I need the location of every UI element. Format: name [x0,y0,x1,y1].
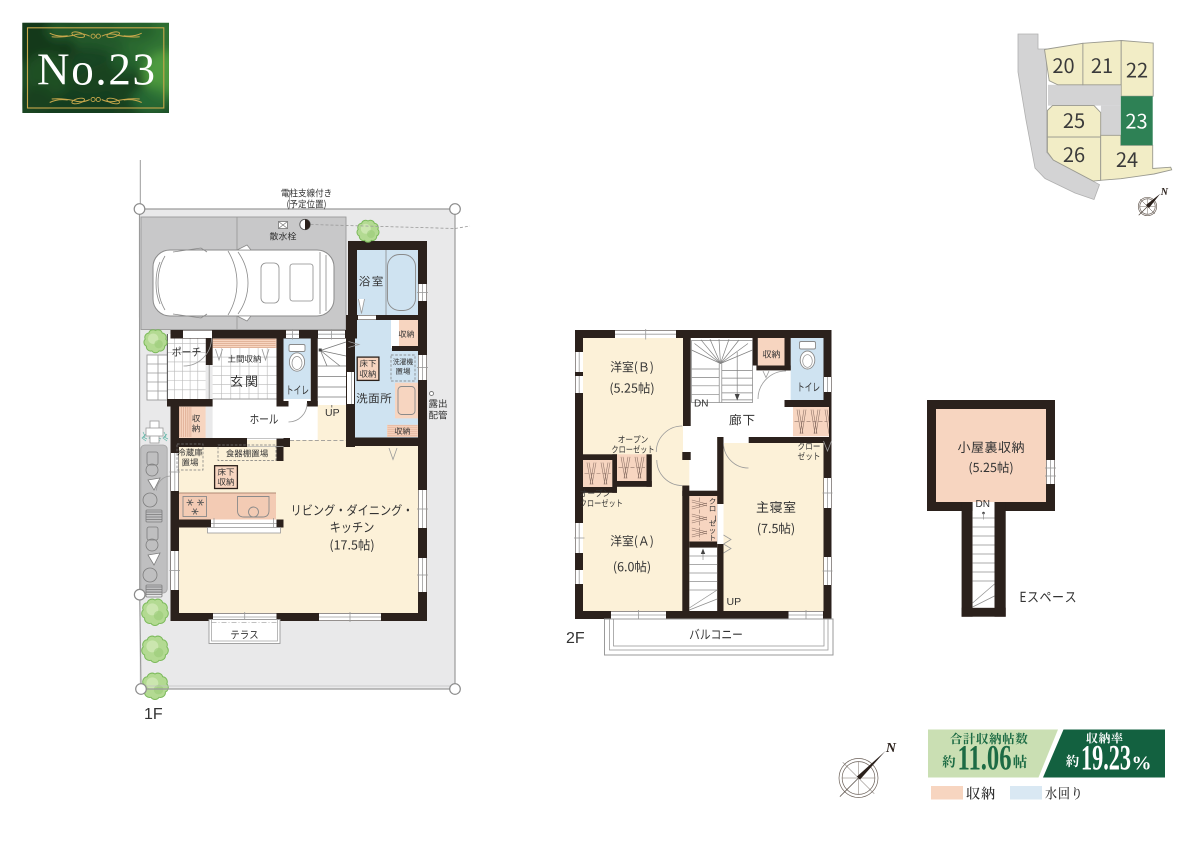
svg-text:19.23: 19.23 [1081,738,1131,778]
svg-text:2F: 2F [566,630,585,647]
svg-text:No.23: No.23 [37,45,155,95]
svg-text:UP: UP [727,596,742,608]
svg-text:%: % [1132,753,1152,775]
svg-text:11.06: 11.06 [958,738,1012,778]
svg-text:UP: UP [325,407,340,419]
svg-text:1F: 1F [144,706,163,723]
svg-text:DN: DN [694,399,708,410]
svg-text:N: N [1160,187,1169,198]
svg-text:N: N [885,741,897,756]
svg-text:DN: DN [976,499,990,510]
